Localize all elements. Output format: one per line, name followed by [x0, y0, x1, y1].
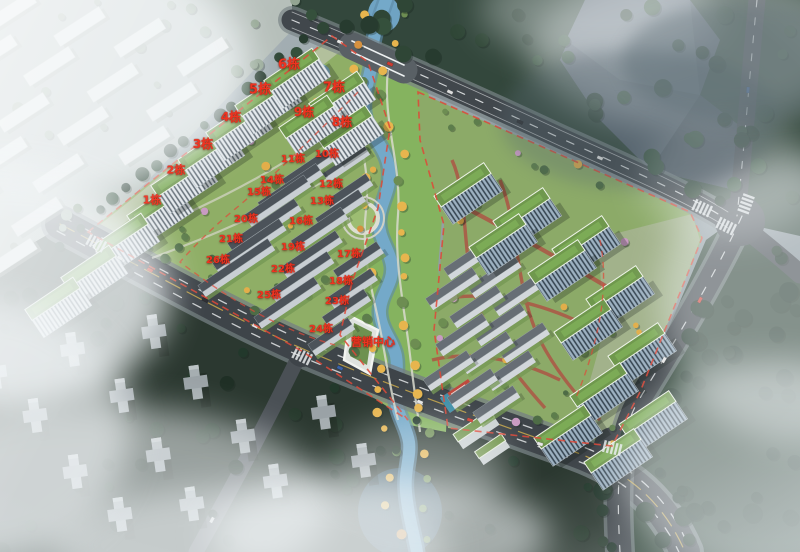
tree	[336, 184, 341, 189]
tree	[360, 16, 378, 34]
tree	[609, 425, 615, 431]
tree	[401, 273, 408, 280]
tree	[369, 344, 377, 352]
tree	[399, 321, 409, 331]
tree	[410, 361, 420, 371]
aerial-masterplan-rendering: 1栋2栋3栋4栋5栋6栋7栋8栋9栋10栋11栋12栋13栋14栋15栋16栋1…	[0, 0, 800, 552]
tree	[330, 383, 340, 393]
tree	[551, 412, 558, 419]
tree	[175, 243, 184, 252]
tree	[299, 34, 308, 43]
tree	[563, 390, 568, 395]
tree	[372, 408, 382, 418]
tree	[475, 33, 489, 47]
tree	[414, 404, 422, 412]
tree	[250, 60, 258, 68]
tree	[633, 323, 639, 329]
tree	[244, 287, 250, 293]
tree	[401, 253, 410, 262]
tree	[220, 376, 234, 390]
tree	[288, 223, 293, 228]
tree	[357, 225, 364, 232]
tree	[261, 162, 270, 171]
tree	[289, 408, 302, 421]
tree	[306, 9, 317, 20]
tree	[438, 318, 447, 327]
tree	[598, 536, 609, 547]
tree	[176, 324, 185, 333]
tree	[201, 208, 209, 216]
tree	[395, 46, 412, 63]
tree	[377, 365, 385, 373]
tree	[378, 66, 387, 75]
fog-cloud	[330, 420, 510, 520]
scene-graphic	[0, 0, 800, 552]
tree	[584, 483, 592, 491]
tree	[413, 389, 423, 399]
tree	[448, 124, 454, 130]
tree	[573, 525, 589, 541]
tree	[238, 348, 248, 358]
tree	[442, 109, 448, 115]
tree	[374, 386, 381, 393]
tree	[425, 49, 440, 64]
tree	[354, 41, 362, 49]
tree	[398, 229, 405, 236]
tree	[370, 166, 376, 172]
tree	[596, 504, 608, 516]
tree	[397, 201, 407, 211]
tree	[410, 339, 420, 349]
tree	[321, 275, 329, 283]
tree	[362, 314, 371, 323]
tree	[393, 176, 402, 185]
tree	[400, 150, 409, 159]
tree	[392, 40, 399, 47]
tree	[274, 52, 284, 62]
tree	[512, 418, 520, 426]
tree	[251, 19, 260, 28]
tree	[397, 297, 408, 308]
tree	[339, 20, 353, 34]
tree	[560, 303, 567, 310]
tree	[271, 181, 279, 189]
tree	[209, 255, 216, 262]
tree	[181, 233, 189, 241]
tree	[508, 456, 518, 466]
tree	[317, 22, 329, 34]
tree	[474, 118, 481, 125]
tree	[450, 24, 465, 39]
tree	[533, 415, 542, 424]
